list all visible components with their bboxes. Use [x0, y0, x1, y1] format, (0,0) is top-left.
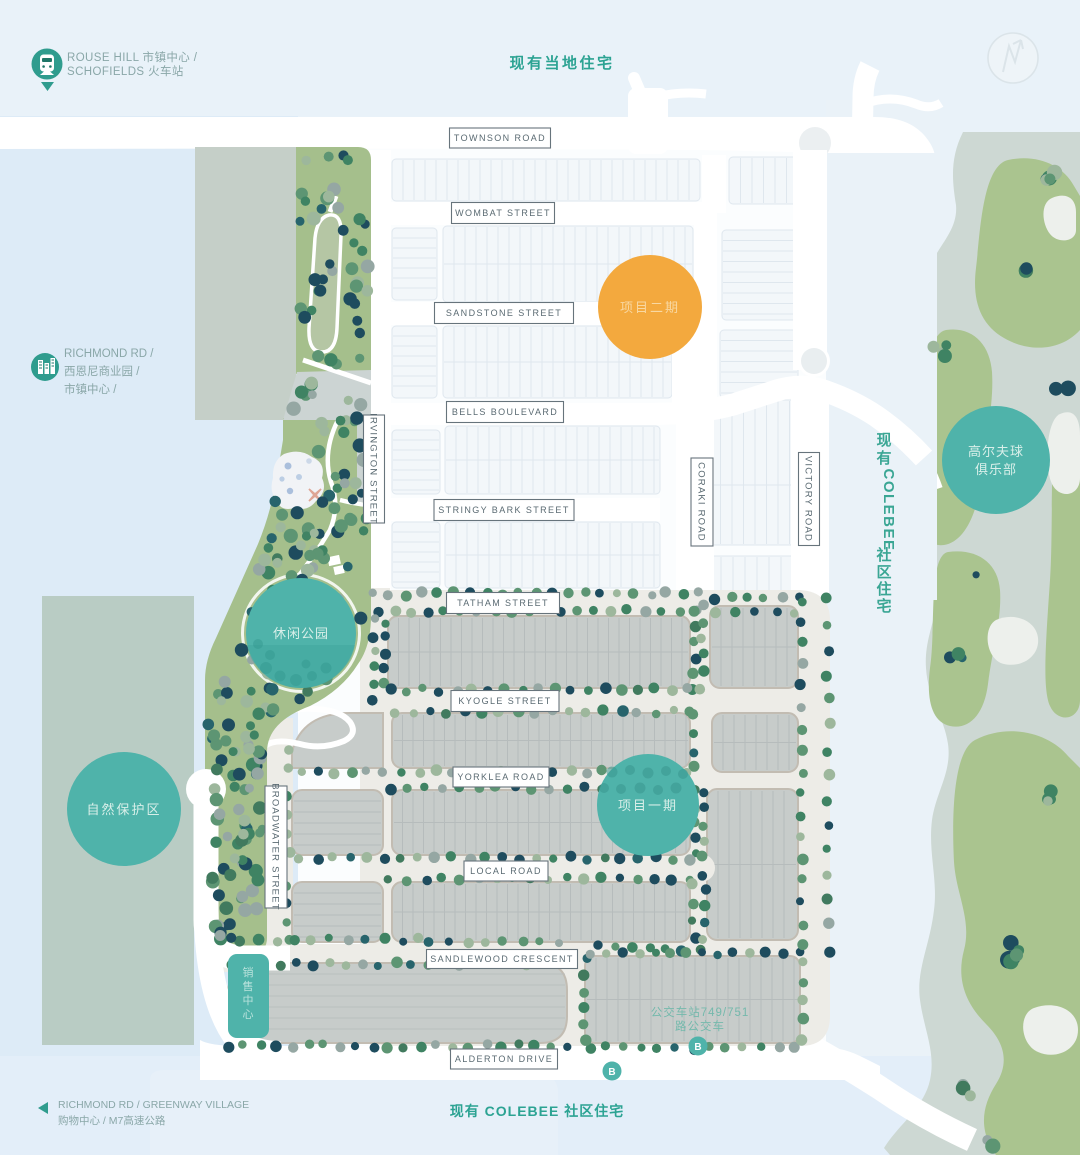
svg-text:WOMBAT STREET: WOMBAT STREET [455, 208, 551, 218]
svg-text:自然保护区: 自然保护区 [86, 802, 161, 817]
svg-text:STRINGY BARK STREET: STRINGY BARK STREET [438, 505, 569, 515]
svg-text:西恩尼商业园 /: 西恩尼商业园 / [64, 364, 140, 378]
svg-text:现: 现 [876, 432, 891, 449]
svg-text:BROADWATER STREET: BROADWATER STREET [270, 783, 281, 911]
svg-text:中: 中 [243, 994, 254, 1007]
svg-text:高尔夫球: 高尔夫球 [968, 444, 1024, 459]
svg-text:市镇中心 /: 市镇中心 / [64, 382, 117, 396]
svg-text:休闲公园: 休闲公园 [273, 626, 329, 641]
svg-text:现有当地住宅: 现有当地住宅 [509, 54, 614, 72]
svg-text:CORAKI ROAD: CORAKI ROAD [696, 462, 707, 542]
svg-text:销: 销 [243, 965, 254, 979]
svg-text:BELLS BOULEVARD: BELLS BOULEVARD [452, 407, 558, 417]
svg-text:TOWNSON ROAD: TOWNSON ROAD [454, 133, 546, 143]
svg-text:KYOGLE STREET: KYOGLE STREET [458, 696, 551, 706]
svg-text:IRVINGTON STREET: IRVINGTON STREET [368, 413, 379, 525]
svg-text:心: 心 [243, 1008, 254, 1021]
svg-text:ALDERTON DRIVE: ALDERTON DRIVE [455, 1054, 553, 1064]
svg-text:RICHMOND RD /: RICHMOND RD / [64, 348, 154, 360]
svg-text:项目一期: 项目一期 [618, 798, 678, 813]
svg-text:路公交车: 路公交车 [675, 1019, 725, 1033]
svg-text:区: 区 [876, 564, 891, 581]
svg-text:俱乐部: 俱乐部 [975, 462, 1017, 477]
svg-text:SANDLEWOOD CRESCENT: SANDLEWOOD CRESCENT [430, 954, 574, 964]
svg-text:宅: 宅 [876, 597, 891, 615]
svg-text:ROUSE HILL 市镇中心 /: ROUSE HILL 市镇中心 / [67, 50, 198, 64]
svg-text:SANDSTONE STREET: SANDSTONE STREET [446, 308, 562, 318]
svg-text:B: B [608, 1067, 615, 1078]
svg-text:售: 售 [243, 979, 254, 993]
svg-text:购物中心 / M7高速公路: 购物中心 / M7高速公路 [58, 1114, 166, 1127]
svg-text:B: B [694, 1042, 701, 1053]
svg-text:YORKLEA ROAD: YORKLEA ROAD [457, 772, 544, 782]
svg-text:社: 社 [875, 546, 891, 564]
svg-text:公交车站749/751: 公交车站749/751 [651, 1005, 750, 1019]
svg-text:现有 COLEBEE 社区住宅: 现有 COLEBEE 社区住宅 [450, 1103, 624, 1119]
svg-text:项目二期: 项目二期 [620, 300, 680, 315]
svg-text:TATHAM STREET: TATHAM STREET [457, 598, 549, 608]
svg-text:RICHMOND RD / GREENWAY VILLAGE: RICHMOND RD / GREENWAY VILLAGE [58, 1099, 249, 1111]
svg-text:COLEBEE: COLEBEE [880, 468, 897, 551]
svg-text:住: 住 [876, 580, 891, 598]
svg-text:有: 有 [876, 449, 891, 467]
svg-text:SCHOFIELDS 火车站: SCHOFIELDS 火车站 [67, 64, 184, 78]
svg-text:VICTORY ROAD: VICTORY ROAD [803, 456, 814, 542]
svg-text:LOCAL ROAD: LOCAL ROAD [470, 866, 542, 876]
